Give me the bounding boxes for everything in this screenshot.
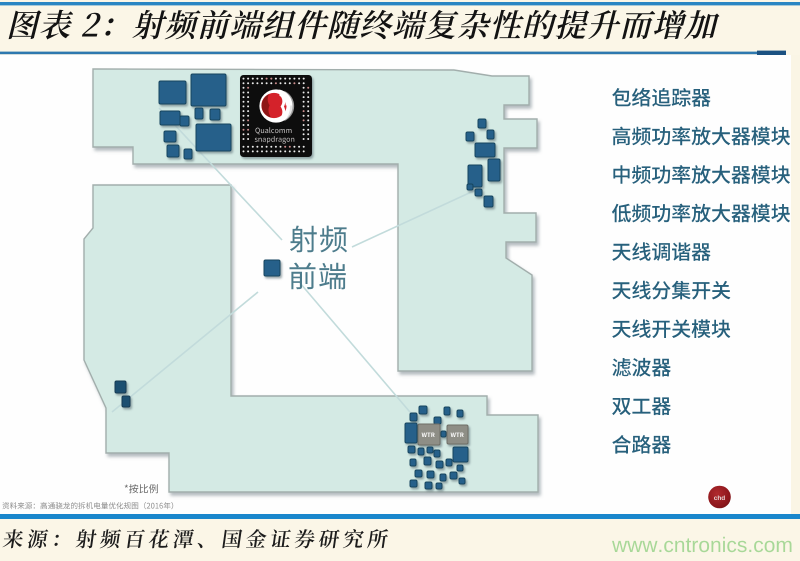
svg-text:chd: chd [714,495,726,502]
